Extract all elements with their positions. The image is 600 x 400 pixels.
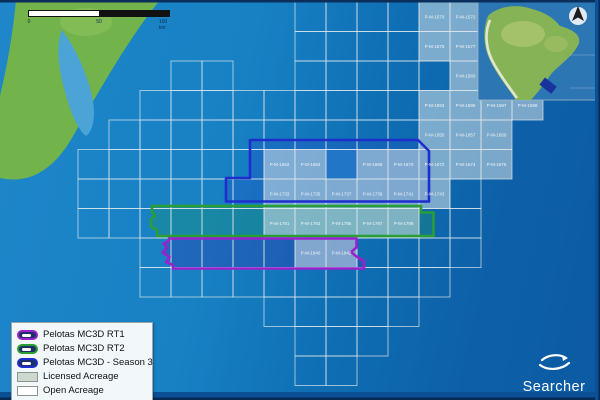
legend-item: Open Acreage <box>17 384 147 397</box>
block-label: P-M-1741 <box>394 192 414 197</box>
grid-cell <box>388 297 419 327</box>
block-label: P-M-1577 <box>456 44 476 49</box>
block-label: P-M-1799 <box>394 221 414 226</box>
block-label: P-M-1595 <box>456 103 476 108</box>
grid-cell <box>202 120 233 150</box>
grid-cell <box>419 268 450 298</box>
block-label: P-M-1670 <box>394 162 414 167</box>
grid-cell <box>109 150 140 180</box>
grid-cell <box>171 120 202 150</box>
grid-cell <box>326 91 357 121</box>
grid-cell <box>326 61 357 91</box>
legend-swatch-icon <box>17 386 38 396</box>
block-label: P-M-1735 <box>301 192 321 197</box>
grid-cell <box>140 150 171 180</box>
legend-swatch-icon <box>17 330 38 340</box>
block-label: P-M-1672 <box>425 162 445 167</box>
grid-cell <box>109 179 140 209</box>
legend-item-label: Licensed Acreage <box>43 371 119 382</box>
grid-cell <box>78 150 109 180</box>
grid-cell <box>295 32 326 62</box>
block-label: P-M-1842 <box>332 251 352 256</box>
grid-cell <box>78 179 109 209</box>
grid-cell <box>202 268 233 298</box>
block-label: P-M-1655 <box>425 133 445 138</box>
scale-label-mid: 50 <box>96 19 102 25</box>
block-label: P-M-1659 <box>487 133 507 138</box>
grid-cell <box>171 268 202 298</box>
grid-cell <box>419 61 450 91</box>
inset-overview-map <box>478 2 598 100</box>
grid-cell <box>140 268 171 298</box>
grid-cell <box>450 238 481 268</box>
grid-cell <box>388 32 419 62</box>
grid-cell <box>388 268 419 298</box>
block-label: P-M-1797 <box>363 221 383 226</box>
grid-cell <box>388 2 419 32</box>
legend-item: Pelotas MC3D RT1 <box>17 328 147 341</box>
grid-cell <box>357 297 388 327</box>
grid-cell <box>357 91 388 121</box>
map-legend: Pelotas MC3D RT1Pelotas MC3D RT2Pelotas … <box>11 322 153 400</box>
scale-label-end: 100 km <box>159 19 167 31</box>
grid-cell <box>450 209 481 239</box>
grid-cell <box>171 61 202 91</box>
grid-cell <box>171 179 202 209</box>
grid-cell <box>140 91 171 121</box>
grid-cell <box>388 61 419 91</box>
grid-cell <box>295 2 326 32</box>
grid-cell <box>419 238 450 268</box>
block-label: P-M-1795 <box>332 221 352 226</box>
block-label: P-M-1676 <box>487 162 507 167</box>
grid-cell <box>295 268 326 298</box>
grid-cell <box>109 209 140 239</box>
inset-terrain-patch <box>544 36 568 52</box>
block-label: P-M-1733 <box>270 192 290 197</box>
legend-item-label: Pelotas MC3D RT2 <box>43 343 125 354</box>
legend-item: Pelotas MC3D RT2 <box>17 342 147 355</box>
grid-cell <box>388 91 419 121</box>
block-label: P-M-1570 <box>425 15 445 20</box>
grid-cell <box>357 2 388 32</box>
block-label: P-M-1583 <box>456 74 476 79</box>
block-label: P-M-1793 <box>301 221 321 226</box>
legend-item: Pelotas MC3D - Season 3 <box>17 356 147 369</box>
grid-cell <box>357 327 388 357</box>
legend-swatch-icon <box>17 358 38 368</box>
grid-cell <box>264 268 295 298</box>
legend-swatch-icon <box>17 372 38 382</box>
block-label: P-M-1674 <box>456 162 476 167</box>
inset-terrain-patch <box>501 21 545 47</box>
grid-cell <box>326 356 357 386</box>
legend-item-label: Open Acreage <box>43 385 104 396</box>
grid-cell <box>326 297 357 327</box>
grid-cell <box>326 32 357 62</box>
grid-cell <box>295 61 326 91</box>
legend-item-label: Pelotas MC3D RT1 <box>43 329 125 340</box>
scale-bar: 0 50 100 km <box>28 8 170 28</box>
grid-cell <box>202 150 233 180</box>
block-label: P-M-1662 <box>270 162 290 167</box>
block-label: P-M-1657 <box>456 133 476 138</box>
grid-cell <box>326 2 357 32</box>
block-label: P-M-1840 <box>301 251 321 256</box>
grid-cell <box>295 327 326 357</box>
legend-item: Licensed Acreage <box>17 370 147 383</box>
grid-cell <box>140 120 171 150</box>
searcher-logo-text: Searcher <box>512 379 596 395</box>
legend-item-label: Pelotas MC3D - Season 3 <box>43 357 153 368</box>
grid-cell <box>295 356 326 386</box>
grid-cell <box>233 268 264 298</box>
grid-cell <box>326 268 357 298</box>
grid-cell <box>357 32 388 62</box>
grid-cell <box>357 268 388 298</box>
grid-cell <box>450 179 481 209</box>
grid-cell <box>202 91 233 121</box>
grid-cell <box>264 297 295 327</box>
block-label: P-M-1593 <box>425 103 445 108</box>
grid-cell <box>140 179 171 209</box>
grid-cell <box>357 61 388 91</box>
grid-cell <box>295 91 326 121</box>
block-label: P-M-1668 <box>363 162 383 167</box>
block-label: P-M-1597 <box>487 103 507 108</box>
unlicensed-survey-block <box>326 150 357 180</box>
block-label: P-M-1739 <box>363 192 383 197</box>
block-label: P-M-1599 <box>518 103 538 108</box>
grid-cell <box>264 91 295 121</box>
scale-bar-segments <box>28 10 170 17</box>
grid-cell <box>326 327 357 357</box>
block-label: P-M-1575 <box>425 44 445 49</box>
legend-swatch-icon <box>17 344 38 354</box>
grid-cell <box>233 91 264 121</box>
block-label: P-M-1572 <box>456 15 476 20</box>
grid-cell <box>171 91 202 121</box>
grid-cell <box>295 297 326 327</box>
searcher-swoosh-icon <box>512 352 596 374</box>
block-label: P-M-1737 <box>332 192 352 197</box>
block-label: P-M-1664 <box>301 162 321 167</box>
pelotas-acreage-map: P-M-1570P-M-1572P-M-1575P-M-1577P-M-1583… <box>0 0 600 400</box>
grid-cell <box>202 61 233 91</box>
grid-cell <box>78 209 109 239</box>
searcher-logo: Searcher <box>512 352 596 395</box>
block-label: P-M-1791 <box>270 221 290 226</box>
scale-label-start: 0 <box>28 19 31 25</box>
grid-cell <box>109 120 140 150</box>
block-label: P-M-1743 <box>425 192 445 197</box>
grid-cell <box>171 150 202 180</box>
grid-cell <box>388 238 419 268</box>
